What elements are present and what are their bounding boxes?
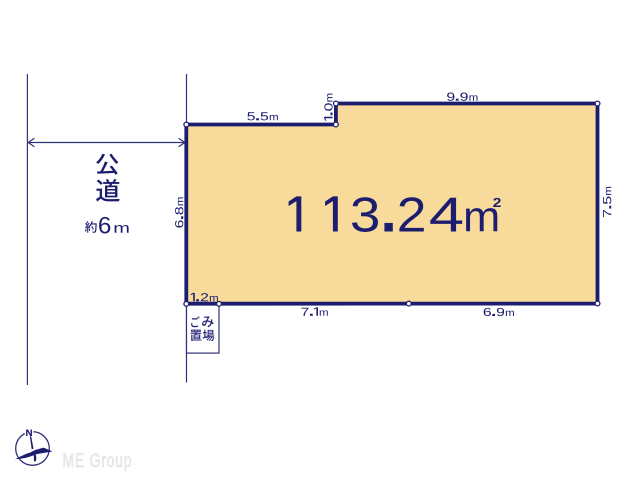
svg-text:ME Group: ME Group	[63, 450, 133, 472]
svg-text:N: N	[26, 428, 33, 439]
